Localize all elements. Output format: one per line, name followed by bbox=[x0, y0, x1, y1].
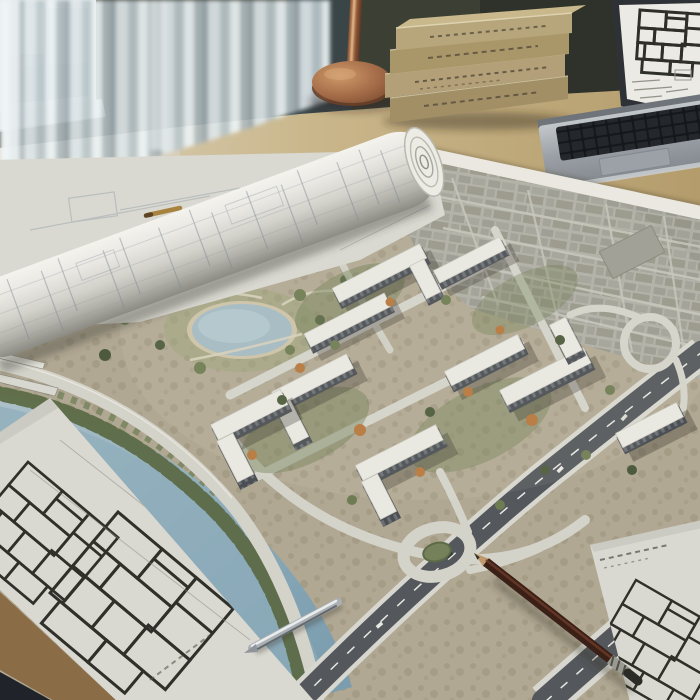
lamp-base bbox=[312, 61, 392, 103]
scene bbox=[0, 0, 700, 700]
scene-canvas bbox=[0, 0, 700, 700]
